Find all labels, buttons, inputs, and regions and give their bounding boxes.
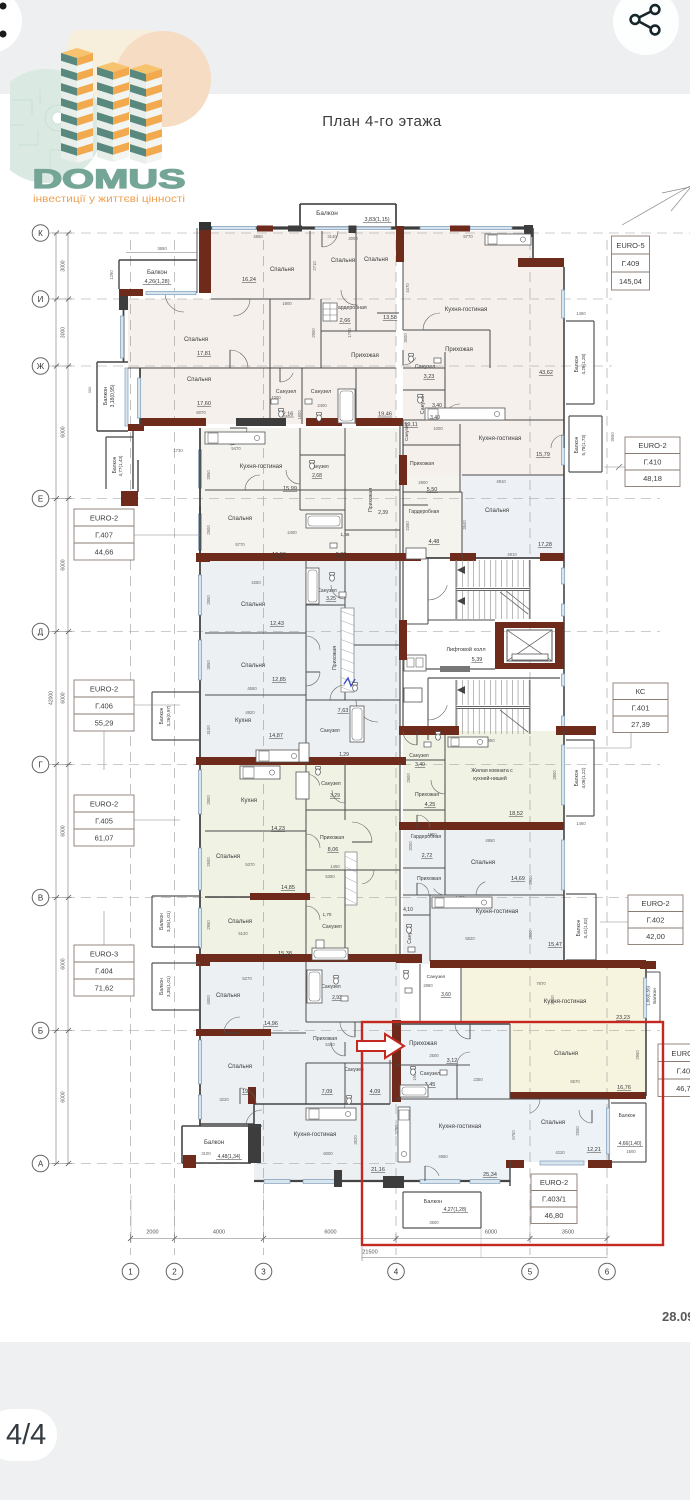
svg-text:4,26(1,28): 4,26(1,28) bbox=[581, 353, 586, 374]
svg-text:5: 5 bbox=[528, 1267, 533, 1276]
svg-text:Балкон: Балкон bbox=[103, 387, 109, 405]
svg-text:И: И bbox=[38, 295, 44, 304]
svg-text:кухней-нишей: кухней-нишей bbox=[473, 775, 507, 782]
svg-text:Санузел: Санузел bbox=[409, 753, 429, 759]
svg-text:Б: Б bbox=[38, 1026, 43, 1035]
svg-text:3,12: 3,12 bbox=[447, 1058, 458, 1064]
svg-text:К: К bbox=[38, 229, 43, 238]
svg-text:3,25: 3,25 bbox=[326, 596, 336, 602]
svg-text:6000: 6000 bbox=[61, 1091, 67, 1102]
svg-text:Кухня-гостиная: Кухня-гостиная bbox=[479, 436, 521, 442]
svg-text:В: В bbox=[38, 893, 43, 902]
svg-text:Прихожая: Прихожая bbox=[332, 646, 338, 670]
svg-text:Кухня-гостиная: Кухня-гостиная bbox=[439, 1124, 481, 1130]
svg-text:2350: 2350 bbox=[405, 521, 410, 531]
svg-text:4220: 4220 bbox=[555, 1150, 565, 1155]
svg-text:3100: 3100 bbox=[206, 725, 211, 735]
svg-text:Балкон: Балкон bbox=[159, 913, 165, 930]
svg-text:Прихожая: Прихожая bbox=[409, 1041, 437, 1047]
svg-text:3500: 3500 bbox=[429, 1220, 439, 1225]
svg-text:Спальня: Спальня bbox=[228, 516, 252, 522]
svg-text:EURO-3: EURO-3 bbox=[90, 950, 118, 959]
svg-text:6000: 6000 bbox=[324, 1230, 336, 1236]
svg-text:Балкон: Балкон bbox=[574, 769, 580, 786]
svg-text:15,47: 15,47 bbox=[548, 942, 562, 948]
svg-text:EURO-5: EURO-5 bbox=[616, 241, 644, 250]
svg-text:1460: 1460 bbox=[576, 821, 586, 826]
svg-text:300: 300 bbox=[87, 386, 92, 393]
svg-text:3,26(0,97): 3,26(0,97) bbox=[166, 705, 171, 726]
svg-text:Ж: Ж bbox=[37, 362, 45, 371]
svg-text:Спальня: Спальня bbox=[331, 258, 355, 264]
svg-text:4: 4 bbox=[394, 1267, 399, 1276]
svg-text:2,30: 2,30 bbox=[336, 552, 347, 558]
svg-text:3650: 3650 bbox=[157, 246, 167, 251]
svg-text:1900: 1900 bbox=[282, 301, 292, 306]
svg-text:12,43: 12,43 bbox=[270, 621, 284, 627]
svg-text:1600: 1600 bbox=[626, 1149, 636, 1154]
svg-text:Прихожая: Прихожая bbox=[445, 347, 473, 353]
svg-text:3000: 3000 bbox=[348, 236, 358, 241]
svg-text:15,38: 15,38 bbox=[278, 951, 292, 957]
svg-text:Балкон: Балкон bbox=[576, 919, 582, 936]
svg-text:2500: 2500 bbox=[575, 1126, 580, 1136]
svg-text:3,35(1,01): 3,35(1,01) bbox=[166, 911, 171, 932]
svg-text:12,21: 12,21 bbox=[587, 1147, 601, 1153]
svg-text:1,70: 1,70 bbox=[323, 912, 332, 917]
svg-text:4950: 4950 bbox=[485, 838, 495, 843]
svg-text:3,18(0,95): 3,18(0,95) bbox=[110, 384, 116, 407]
svg-text:Балкон: Балкон bbox=[574, 436, 580, 453]
svg-text:27,39: 27,39 bbox=[631, 720, 650, 729]
svg-text:6000: 6000 bbox=[323, 1151, 333, 1156]
svg-text:2,39: 2,39 bbox=[378, 510, 388, 516]
svg-text:Балкон: Балкон bbox=[574, 355, 580, 372]
svg-text:16,24: 16,24 bbox=[242, 277, 256, 283]
svg-text:Санузел: Санузел bbox=[311, 389, 331, 395]
svg-text:Спальня: Спальня bbox=[241, 663, 265, 669]
svg-text:EURO-2: EURO-2 bbox=[90, 800, 118, 809]
svg-text:2880: 2880 bbox=[423, 983, 433, 988]
svg-text:16,96: 16,96 bbox=[272, 552, 286, 558]
svg-text:5370: 5370 bbox=[245, 862, 255, 867]
svg-text:1730: 1730 bbox=[173, 448, 183, 453]
svg-text:Г.410: Г.410 bbox=[644, 458, 662, 467]
svg-text:3,60: 3,60 bbox=[441, 992, 451, 998]
svg-text:25,34: 25,34 bbox=[483, 1172, 497, 1178]
svg-text:3,40: 3,40 bbox=[430, 415, 440, 421]
svg-text:Кухня-гостиная: Кухня-гостиная bbox=[240, 464, 282, 470]
svg-text:2900: 2900 bbox=[406, 773, 411, 783]
svg-text:Спальня: Спальня bbox=[554, 1051, 578, 1057]
svg-text:61,07: 61,07 bbox=[95, 834, 114, 843]
svg-text:2900: 2900 bbox=[418, 480, 428, 485]
svg-text:4,26(1,28): 4,26(1,28) bbox=[144, 279, 169, 285]
svg-text:1450: 1450 bbox=[330, 864, 340, 869]
svg-text:Г.401: Г.401 bbox=[632, 704, 650, 713]
svg-text:43,62: 43,62 bbox=[539, 370, 553, 376]
svg-text:46,80: 46,80 bbox=[545, 1211, 564, 1220]
svg-text:3220: 3220 bbox=[219, 1097, 229, 1102]
svg-text:2000: 2000 bbox=[408, 841, 413, 851]
svg-text:4910: 4910 bbox=[507, 552, 517, 557]
svg-text:2400: 2400 bbox=[287, 530, 297, 535]
svg-text:Спальня: Спальня bbox=[241, 602, 265, 608]
svg-text:Санузел: Санузел bbox=[415, 364, 435, 370]
svg-text:Спальня: Спальня bbox=[216, 854, 240, 860]
svg-text:КС: КС bbox=[636, 687, 646, 696]
svg-text:6070: 6070 bbox=[196, 410, 206, 415]
svg-text:Спальня: Спальня bbox=[471, 860, 495, 866]
svg-text:6000: 6000 bbox=[61, 426, 67, 437]
svg-text:А: А bbox=[38, 1159, 44, 1168]
svg-text:EURO-2: EURO-2 bbox=[638, 441, 666, 450]
svg-text:1,86(0,56): 1,86(0,56) bbox=[646, 985, 651, 1006]
svg-text:Балкон: Балкон bbox=[316, 210, 338, 217]
svg-text:23,23: 23,23 bbox=[616, 1015, 630, 1021]
svg-text:5270: 5270 bbox=[242, 976, 252, 981]
svg-text:Спальня: Спальня bbox=[184, 337, 208, 343]
svg-text:48,18: 48,18 bbox=[643, 474, 662, 483]
svg-text:2800: 2800 bbox=[550, 995, 555, 1005]
svg-text:Прихожая: Прихожая bbox=[320, 835, 344, 841]
svg-text:EURO-2: EURO-2 bbox=[90, 685, 118, 694]
svg-text:3,41(1,02): 3,41(1,02) bbox=[583, 917, 588, 938]
svg-text:Спальня: Спальня bbox=[228, 919, 252, 925]
svg-text:1,29: 1,29 bbox=[339, 752, 349, 758]
svg-text:3540: 3540 bbox=[462, 520, 467, 530]
svg-text:145,04: 145,04 bbox=[619, 277, 642, 286]
svg-text:17,60: 17,60 bbox=[197, 401, 211, 407]
svg-text:Балкон: Балкон bbox=[204, 1140, 224, 1146]
svg-text:Г.406: Г.406 bbox=[95, 702, 113, 711]
svg-text:7870: 7870 bbox=[536, 981, 546, 986]
svg-text:4000: 4000 bbox=[213, 1230, 225, 1236]
svg-text:5,50: 5,50 bbox=[427, 487, 438, 493]
svg-text:4850: 4850 bbox=[253, 234, 263, 239]
svg-text:4,48(1,34): 4,48(1,34) bbox=[218, 1154, 241, 1160]
svg-text:17,28: 17,28 bbox=[538, 542, 552, 548]
svg-text:Кухня: Кухня bbox=[235, 718, 251, 724]
svg-text:EURO-2: EURO-2 bbox=[641, 899, 669, 908]
svg-text:2950: 2950 bbox=[635, 1050, 640, 1060]
svg-text:5120: 5120 bbox=[238, 931, 248, 936]
svg-text:2900: 2900 bbox=[206, 525, 211, 535]
svg-text:Кухня-гостиная: Кухня-гостиная bbox=[294, 1132, 336, 1138]
svg-text:Прихожая: Прихожая bbox=[351, 353, 379, 359]
svg-text:14,69: 14,69 bbox=[511, 876, 525, 882]
svg-text:55,29: 55,29 bbox=[95, 719, 114, 728]
svg-text:42,00: 42,00 bbox=[646, 932, 665, 941]
svg-text:6000: 6000 bbox=[61, 692, 67, 703]
svg-text:14,23: 14,23 bbox=[271, 826, 285, 832]
svg-text:3850: 3850 bbox=[206, 660, 211, 670]
svg-text:5,39: 5,39 bbox=[472, 657, 483, 663]
svg-text:15,79: 15,79 bbox=[536, 452, 550, 458]
svg-text:4,48: 4,48 bbox=[429, 539, 440, 545]
svg-text:5570: 5570 bbox=[570, 1079, 580, 1084]
svg-text:Г.405: Г.405 bbox=[95, 817, 113, 826]
svg-text:4,10: 4,10 bbox=[403, 907, 413, 913]
svg-text:Жилая комната с: Жилая комната с bbox=[471, 768, 513, 774]
svg-text:21500: 21500 bbox=[362, 1250, 377, 1256]
svg-text:4,09: 4,09 bbox=[370, 1089, 381, 1095]
svg-text:19,46: 19,46 bbox=[378, 412, 392, 418]
svg-text:3520: 3520 bbox=[353, 1135, 358, 1145]
svg-text:1000: 1000 bbox=[433, 426, 443, 431]
svg-text:Спальня: Спальня bbox=[270, 267, 294, 273]
svg-text:15,99: 15,99 bbox=[283, 486, 297, 492]
svg-text:2,72: 2,72 bbox=[422, 853, 433, 859]
svg-text:Балкон: Балкон bbox=[147, 270, 167, 276]
svg-text:5,78(1,73): 5,78(1,73) bbox=[581, 434, 586, 455]
svg-text:46,77: 46,77 bbox=[676, 1084, 690, 1093]
svg-text:2500: 2500 bbox=[429, 1053, 439, 1058]
svg-text:2800: 2800 bbox=[552, 770, 557, 780]
svg-text:Санузел: Санузел bbox=[322, 924, 342, 930]
svg-text:Балкон: Балкон bbox=[424, 1199, 442, 1205]
svg-text:5770: 5770 bbox=[463, 234, 473, 239]
svg-text:2950: 2950 bbox=[206, 920, 211, 930]
svg-text:16,76: 16,76 bbox=[617, 1085, 631, 1091]
svg-text:Кухня: Кухня bbox=[241, 798, 257, 804]
svg-text:5770: 5770 bbox=[235, 542, 245, 547]
svg-text:4800: 4800 bbox=[206, 995, 211, 1005]
svg-text:Санузел: Санузел bbox=[420, 1071, 440, 1077]
svg-text:Прихожая: Прихожая bbox=[368, 488, 374, 512]
svg-text:4550: 4550 bbox=[247, 686, 257, 691]
svg-text:18,52: 18,52 bbox=[509, 811, 523, 817]
svg-text:Е: Е bbox=[38, 494, 43, 503]
svg-text:1,46: 1,46 bbox=[341, 532, 350, 537]
svg-text:4,25: 4,25 bbox=[425, 802, 436, 808]
svg-text:21,16: 21,16 bbox=[371, 1167, 385, 1173]
svg-text:Санузел: Санузел bbox=[321, 781, 341, 787]
svg-text:17,81: 17,81 bbox=[197, 351, 211, 357]
svg-text:4,66(1,40): 4,66(1,40) bbox=[619, 1141, 642, 1147]
svg-text:1: 1 bbox=[128, 1267, 133, 1276]
svg-text:5520: 5520 bbox=[465, 936, 475, 941]
svg-text:3,23: 3,23 bbox=[424, 374, 435, 380]
svg-text:Санузел: Санузел bbox=[320, 728, 340, 734]
svg-text:Спальня: Спальня bbox=[187, 377, 211, 383]
svg-text:3,40: 3,40 bbox=[415, 762, 425, 768]
svg-text:Балкон: Балкон bbox=[652, 988, 657, 1004]
svg-text:19,13: 19,13 bbox=[242, 1089, 256, 1095]
svg-text:Санузел: Санузел bbox=[321, 984, 341, 990]
svg-text:Лифтовой холл: Лифтовой холл bbox=[446, 646, 485, 653]
svg-text:1800: 1800 bbox=[297, 410, 302, 420]
svg-text:2,66: 2,66 bbox=[340, 318, 351, 324]
svg-text:Г.404: Г.404 bbox=[95, 967, 113, 976]
svg-text:Балкон: Балкон bbox=[159, 707, 165, 724]
svg-text:Спальня: Спальня bbox=[485, 508, 509, 514]
svg-text:Г.403/1: Г.403/1 bbox=[542, 1195, 566, 1204]
svg-text:6000: 6000 bbox=[61, 825, 67, 836]
svg-text:3,35(1,01): 3,35(1,01) bbox=[166, 976, 171, 997]
svg-text:Спальня: Спальня bbox=[541, 1120, 565, 1126]
svg-text:Гардеробная: Гардеробная bbox=[411, 834, 442, 840]
svg-text:5350: 5350 bbox=[325, 1042, 335, 1047]
svg-text:EURO-2: EURO-2 bbox=[540, 1178, 568, 1187]
svg-text:EURO-2: EURO-2 bbox=[90, 514, 118, 523]
svg-text:Прихожая: Прихожая bbox=[415, 792, 439, 798]
svg-text:7,63: 7,63 bbox=[338, 708, 349, 714]
svg-text:2710: 2710 bbox=[312, 261, 317, 271]
svg-text:3500: 3500 bbox=[562, 1230, 574, 1236]
svg-text:2900: 2900 bbox=[311, 328, 316, 338]
svg-text:Д: Д bbox=[38, 627, 44, 636]
svg-text:2850: 2850 bbox=[206, 470, 211, 480]
svg-text:Кухня-гостиная: Кухня-гостиная bbox=[445, 307, 487, 313]
svg-text:2,68: 2,68 bbox=[312, 473, 322, 479]
svg-text:EURO-2: EURO-2 bbox=[671, 1049, 690, 1058]
svg-text:Спальня: Спальня bbox=[364, 257, 388, 263]
svg-text:8,06: 8,06 bbox=[328, 847, 339, 853]
svg-text:3000: 3000 bbox=[61, 327, 67, 338]
svg-text:5350: 5350 bbox=[325, 874, 335, 879]
svg-text:3: 3 bbox=[261, 1267, 266, 1276]
svg-text:Балкон: Балкон bbox=[159, 978, 165, 995]
svg-text:Спальня: Спальня bbox=[228, 1064, 252, 1070]
svg-text:Спальня: Спальня bbox=[216, 993, 240, 999]
svg-text:4,27(1,28): 4,27(1,28) bbox=[444, 1207, 467, 1213]
svg-text:4920: 4920 bbox=[245, 710, 255, 715]
svg-text:Балкон: Балкон bbox=[619, 1113, 636, 1119]
svg-text:2400: 2400 bbox=[317, 403, 327, 408]
svg-text:4950: 4950 bbox=[438, 1154, 448, 1159]
svg-text:2900: 2900 bbox=[528, 875, 533, 885]
svg-text:2,93: 2,93 bbox=[332, 995, 342, 1001]
svg-text:1460: 1460 bbox=[576, 311, 586, 316]
svg-text:4910: 4910 bbox=[496, 479, 506, 484]
svg-text:2900: 2900 bbox=[528, 930, 533, 940]
svg-text:4,06(1,22): 4,06(1,22) bbox=[581, 767, 586, 788]
svg-text:3000: 3000 bbox=[61, 260, 67, 271]
svg-text:Прихожая: Прихожая bbox=[417, 876, 441, 882]
svg-text:4250: 4250 bbox=[251, 580, 261, 585]
svg-text:6: 6 bbox=[605, 1267, 610, 1276]
svg-text:12,85: 12,85 bbox=[272, 677, 286, 683]
svg-text:5470: 5470 bbox=[231, 446, 241, 451]
svg-text:42000: 42000 bbox=[49, 691, 55, 705]
svg-text:Г.403: Г.403 bbox=[677, 1066, 690, 1075]
svg-text:2,16: 2,16 bbox=[283, 412, 294, 418]
svg-text:Гардеробная: Гардеробная bbox=[409, 509, 440, 515]
svg-text:Санузел: Санузел bbox=[427, 974, 446, 980]
svg-text:Г: Г bbox=[38, 760, 43, 769]
svg-text:Кухня-гостиная: Кухня-гостиная bbox=[476, 909, 518, 915]
svg-text:Гардеробная: Гардеробная bbox=[335, 305, 367, 311]
svg-text:6750: 6750 bbox=[511, 1130, 516, 1140]
svg-text:2000: 2000 bbox=[146, 1230, 158, 1236]
svg-text:Г.407: Г.407 bbox=[95, 531, 113, 540]
svg-text:13,58: 13,58 bbox=[383, 315, 397, 321]
svg-text:6000: 6000 bbox=[485, 1230, 497, 1236]
svg-text:1750: 1750 bbox=[347, 328, 352, 338]
svg-text:Прихожая: Прихожая bbox=[410, 461, 434, 467]
svg-text:7,09: 7,09 bbox=[322, 1089, 333, 1095]
svg-text:3500: 3500 bbox=[403, 333, 408, 343]
svg-text:Санузел: Санузел bbox=[404, 423, 409, 441]
svg-text:14,87: 14,87 bbox=[269, 733, 283, 739]
svg-text:2600: 2600 bbox=[206, 857, 211, 867]
svg-text:3140: 3140 bbox=[327, 234, 337, 239]
svg-text:6000: 6000 bbox=[61, 958, 67, 969]
svg-text:44,66: 44,66 bbox=[95, 548, 114, 557]
svg-text:Г.402: Г.402 bbox=[647, 916, 665, 925]
svg-text:3100: 3100 bbox=[201, 1151, 211, 1156]
svg-text:71,62: 71,62 bbox=[95, 984, 114, 993]
svg-text:14,96: 14,96 bbox=[264, 1021, 278, 1027]
svg-text:4470: 4470 bbox=[405, 283, 410, 293]
svg-text:14,85: 14,85 bbox=[281, 885, 295, 891]
svg-text:2800: 2800 bbox=[206, 795, 211, 805]
svg-text:3650: 3650 bbox=[610, 432, 615, 442]
svg-text:6000: 6000 bbox=[61, 559, 67, 570]
svg-text:Г.409: Г.409 bbox=[622, 259, 640, 268]
svg-text:2350: 2350 bbox=[473, 1077, 483, 1082]
svg-text:3,83(1,15): 3,83(1,15) bbox=[364, 217, 389, 223]
svg-text:1290: 1290 bbox=[109, 270, 114, 280]
svg-text:2: 2 bbox=[172, 1267, 177, 1276]
svg-text:4,77(1,43): 4,77(1,43) bbox=[118, 455, 123, 476]
svg-text:2850: 2850 bbox=[206, 595, 211, 605]
